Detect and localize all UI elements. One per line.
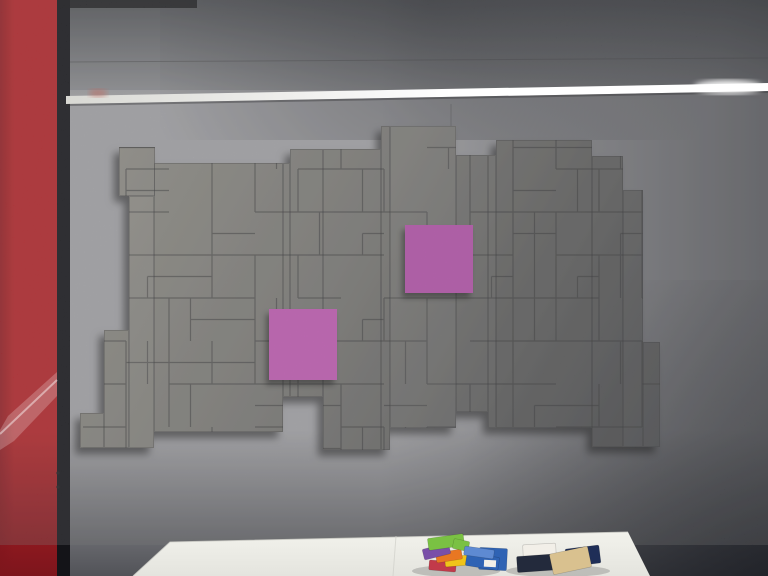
- scene-canvas: [0, 0, 768, 576]
- card-white-label: [484, 560, 496, 568]
- felt-grain-light: [0, 0, 768, 545]
- scene-photo: Showroom wall of gray acoustic felt tile…: [0, 0, 768, 576]
- rail-red-reflection: [89, 89, 107, 97]
- rail-glow-highlight: [694, 80, 762, 94]
